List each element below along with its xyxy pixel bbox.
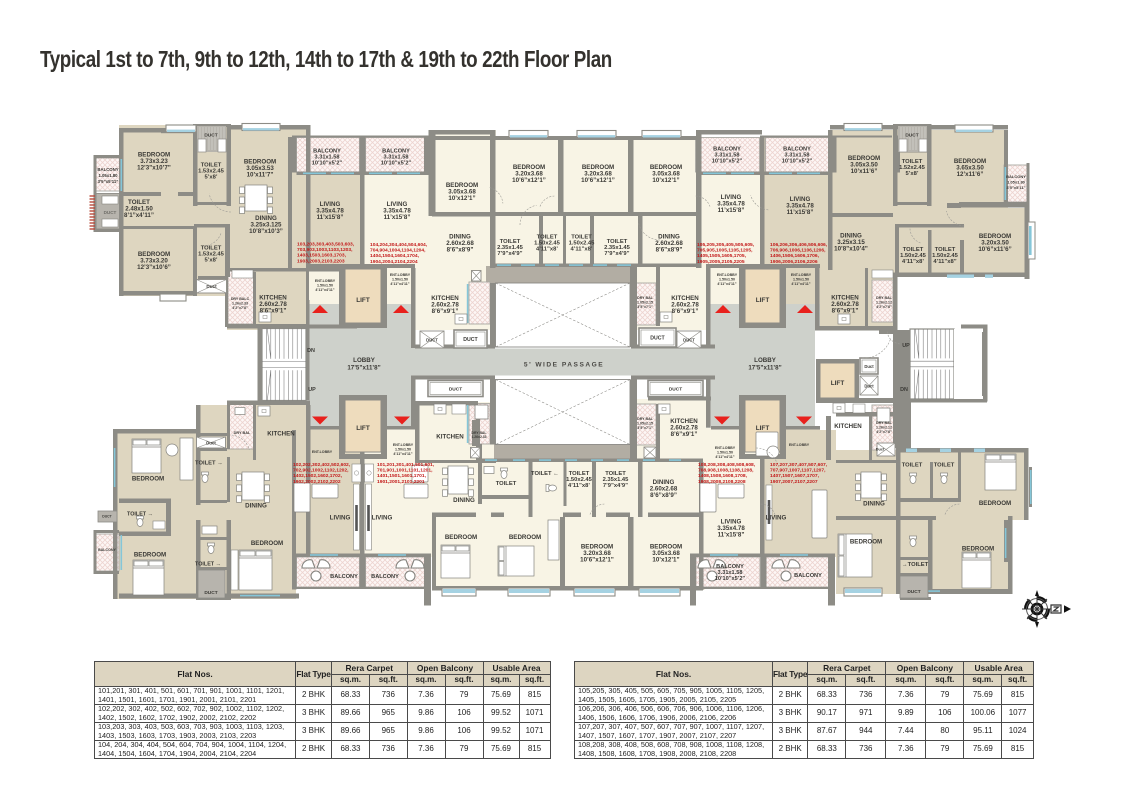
svg-text:BALCONY1.05x1.803’5”x5’11”: BALCONY1.05x1.803’5”x5’11” (1006, 174, 1026, 190)
svg-text:TOILET1.50x2.454’11”x8’: TOILET1.50x2.454’11”x8’ (534, 235, 561, 253)
svg-text:DRY BALC1.26x2.334’2”x7’8”: DRY BALC1.26x2.334’2”x7’8” (231, 297, 250, 310)
svg-text:UP: UP (308, 387, 316, 393)
svg-text:KITCHEN2.60x2.788’6”x9’1”: KITCHEN2.60x2.788’6”x9’1” (431, 295, 459, 315)
svg-text:BEDROOM3.20x3.6810’6”x12’1”: BEDROOM3.20x3.6810’6”x12’1” (580, 544, 614, 564)
svg-text:KITCHEN: KITCHEN (834, 423, 862, 430)
svg-text:DINING: DINING (453, 497, 475, 504)
svg-text:TOILET: TOILET (934, 463, 955, 469)
svg-text:LIVING3.35x4.7811’x15’8”: LIVING3.35x4.7811’x15’8” (717, 194, 745, 214)
svg-text:BALCONY: BALCONY (330, 574, 358, 580)
svg-text:BALCONY: BALCONY (371, 574, 399, 580)
svg-text:DUCT: DUCT (204, 133, 217, 139)
svg-text:TOILET1.50x2.454’11”x8’: TOILET1.50x2.454’11”x8’ (566, 471, 593, 489)
svg-text:DUCT: DUCT (669, 386, 682, 392)
svg-text:→TOILET: →TOILET (902, 562, 929, 568)
svg-text:TOILET2.35x1.457’9”x4’9”: TOILET2.35x1.457’9”x4’9” (603, 471, 630, 489)
svg-text:LIVING: LIVING (372, 515, 393, 522)
svg-text:DUCT: DUCT (463, 337, 478, 343)
svg-text:TOILET →: TOILET → (195, 562, 221, 568)
svg-text:DRY BAL: DRY BAL (234, 431, 251, 435)
svg-text:Duct: Duct (876, 448, 885, 452)
svg-text:DN: DN (900, 387, 908, 393)
svg-text:TOILET ←: TOILET ← (531, 471, 559, 477)
svg-text:DUCT: DUCT (426, 337, 438, 342)
svg-text:LIVING3.35x4.7811’x15’8”: LIVING3.35x4.7811’x15’8” (316, 201, 344, 221)
svg-text:DINING2.60x2.688’6”x8’9”: DINING2.60x2.688’6”x8’9” (446, 234, 474, 254)
svg-text:KITCHEN2.60x2.788’6”x9’1”: KITCHEN2.60x2.788’6”x9’1” (671, 295, 699, 315)
svg-text:ENT.LOBBY: ENT.LOBBY (789, 443, 810, 447)
svg-text:DRY BAL1.05x2.153’5”x7’1”: DRY BAL1.05x2.153’5”x7’1” (637, 417, 654, 430)
svg-text:LIFT: LIFT (356, 425, 370, 432)
svg-text:BEDROOM: BEDROOM (850, 539, 882, 546)
svg-text:ENT.LOBBY1.50x1.504’11”x4’11”: ENT.LOBBY1.50x1.504’11”x4’11” (717, 273, 738, 286)
svg-text:BEDROOM3.05x3.6810’x12’1”: BEDROOM3.05x3.6810’x12’1” (446, 182, 478, 202)
svg-text:KITCHEN2.60x2.788’6”x9’1”: KITCHEN2.60x2.788’6”x9’1” (831, 295, 859, 315)
svg-text:LIFT: LIFT (756, 297, 770, 304)
svg-text:DINING: DINING (863, 501, 885, 508)
svg-text:DRY BAL1.26x2.33: DRY BAL1.26x2.33 (471, 431, 486, 439)
svg-text:BALCONY3.31x1.5810’10”x5’2”: BALCONY3.31x1.5810’10”x5’2” (381, 149, 412, 167)
svg-text:BEDROOM: BEDROOM (445, 534, 477, 541)
svg-text:BALCONY3.31x1.5810’10”x5’2”: BALCONY3.31x1.5810’10”x5’2” (715, 564, 746, 582)
svg-text:LIVING: LIVING (330, 515, 351, 522)
svg-text:DUCT: DUCT (449, 386, 462, 392)
svg-text:ENT.LOBBY1.50x1.504’11”x4’11”: ENT.LOBBY1.50x1.504’11”x4’11” (393, 443, 414, 456)
svg-text:Duct: Duct (206, 284, 217, 289)
svg-text:BEDROOM: BEDROOM (509, 534, 541, 541)
svg-text:TOILET →: TOILET → (127, 512, 153, 518)
svg-text:KITCHEN: KITCHEN (436, 434, 464, 441)
svg-text:TOILET1.50x2.454’11”x8”: TOILET1.50x2.454’11”x8” (932, 247, 959, 265)
svg-text:LIVING3.35x4.7811’x15’8”: LIVING3.35x4.7811’x15’8” (383, 201, 411, 221)
svg-text:BALCONY1.05x1.803’5”x5’11”: BALCONY1.05x1.803’5”x5’11” (97, 167, 118, 184)
svg-text:BEDROOM: BEDROOM (962, 546, 994, 553)
svg-text:DINING: DINING (245, 503, 267, 510)
svg-text:BEDROOM: BEDROOM (251, 540, 283, 547)
svg-text:UP: UP (902, 343, 910, 349)
svg-text:BEDROOM: BEDROOM (132, 476, 164, 483)
svg-text:Duct: Duct (864, 383, 874, 388)
svg-text:BEDROOM3.20x3.6810’6”x12’1”: BEDROOM3.20x3.6810’6”x12’1” (512, 164, 546, 184)
svg-text:Duct: Duct (206, 440, 216, 445)
svg-text:BEDROOM3.73x3.2012’3”x10’6”: BEDROOM3.73x3.2012’3”x10’6” (137, 251, 171, 271)
svg-text:DINING2.60x2.688’6”x8’9”: DINING2.60x2.688’6”x8’9” (655, 234, 683, 254)
svg-text:TOILET2.35x1.457’9”x4’9”: TOILET2.35x1.457’9”x4’9” (604, 239, 631, 257)
svg-text:TOILET →: TOILET → (195, 461, 223, 467)
svg-text:KITCHEN: KITCHEN (267, 431, 295, 438)
svg-text:BEDROOM3.20x3.6810’6”x12’1”: BEDROOM3.20x3.6810’6”x12’1” (581, 164, 615, 184)
svg-text:DUCT: DUCT (650, 335, 665, 341)
svg-text:TOILET2.35x1.457’9”x4’9”: TOILET2.35x1.457’9”x4’9” (497, 239, 524, 257)
svg-text:BEDROOM: BEDROOM (134, 552, 166, 559)
svg-text:BEDROOM3.05x3.5010’x11’6”: BEDROOM3.05x3.5010’x11’6” (848, 155, 880, 175)
svg-text:BEDROOM: BEDROOM (979, 500, 1011, 507)
svg-text:DUCT: DUCT (905, 133, 918, 139)
svg-text:BALCONY3.31x1.5810’10”x5’2”: BALCONY3.31x1.5810’10”x5’2” (782, 147, 813, 165)
svg-text:5’ WIDE PASSAGE: 5’ WIDE PASSAGE (524, 362, 604, 369)
svg-text:BEDROOM3.65x3.5012’x11’6”: BEDROOM3.65x3.5012’x11’6” (954, 158, 986, 178)
svg-text:TOILET: TOILET (902, 463, 923, 469)
svg-text:TOILET1.50x2.454’11”x8’: TOILET1.50x2.454’11”x8’ (900, 247, 927, 265)
svg-text:LIVING: LIVING (766, 515, 787, 522)
svg-text:Duct: Duct (864, 364, 874, 369)
svg-text:ENT.LOBBY1.50x1.504’11”x4’11”: ENT.LOBBY1.50x1.504’11”x4’11” (715, 446, 736, 459)
svg-text:DRY BAL1.05x2.153’5”x7’1”: DRY BAL1.05x2.153’5”x7’1” (637, 296, 654, 309)
svg-text:DUCT: DUCT (104, 210, 117, 215)
svg-text:DRY BAL1.26x2.124’2”x7’8”: DRY BAL1.26x2.124’2”x7’8” (876, 296, 893, 309)
svg-text:DUCT: DUCT (102, 515, 112, 519)
svg-text:KITCHEN2.60x2.788’6”x9’1”: KITCHEN2.60x2.788’6”x9’1” (670, 418, 698, 438)
svg-text:BEDROOM3.05x3.6810’x12’1”: BEDROOM3.05x3.6810’x12’1” (650, 164, 682, 184)
svg-text:ENT.LOBBY1.50x1.504’11”x4’11”: ENT.LOBBY1.50x1.504’11”x4’11” (315, 279, 336, 292)
svg-text:BALCONY3.31x1.5810’10”x5’2”: BALCONY3.31x1.5810’10”x5’2” (312, 149, 343, 167)
svg-text:LIFT: LIFT (831, 380, 845, 387)
svg-text:LIFT: LIFT (356, 297, 370, 304)
svg-text:BEDROOM3.20x3.5010’6”x11’6”: BEDROOM3.20x3.5010’6”x11’6” (978, 233, 1011, 253)
svg-text:DRY BAL1.26x2.124’2”x7’8”: DRY BAL1.26x2.124’2”x7’8” (876, 421, 893, 434)
svg-text:LIVING3.35x4.7811’x15’8”: LIVING3.35x4.7811’x15’8” (717, 519, 745, 539)
svg-text:DUCT: DUCT (683, 337, 695, 342)
svg-text:DUCT: DUCT (204, 590, 217, 596)
svg-text:DUCT: DUCT (907, 589, 920, 595)
svg-text:ENT.LOBBY: ENT.LOBBY (312, 450, 333, 454)
svg-text:BALCONY3.31x1.5810’10”x5’2”: BALCONY3.31x1.5810’10”x5’2” (712, 147, 743, 165)
svg-text:TOILET1.50x2.454’11”x8’: TOILET1.50x2.454’11”x8’ (569, 235, 596, 253)
svg-text:LIFT: LIFT (756, 425, 770, 432)
svg-text:BALCONY: BALCONY (98, 548, 116, 552)
svg-text:BEDROOM3.05x3.6810’x12’1”: BEDROOM3.05x3.6810’x12’1” (650, 544, 682, 564)
svg-text:LIVING3.35x4.7811’x15’8”: LIVING3.35x4.7811’x15’8” (786, 196, 814, 216)
svg-text:DN: DN (307, 348, 315, 354)
svg-text:BEDROOM3.73x3.2312’3”x10’7”: BEDROOM3.73x3.2312’3”x10’7” (137, 152, 171, 172)
svg-text:ENT.LOBBY1.50x1.504’11”x4’11”: ENT.LOBBY1.50x1.504’11”x4’11” (791, 273, 812, 286)
svg-text:TOILET2.48x1.508’1”x4’11”: TOILET2.48x1.508’1”x4’11” (124, 199, 154, 219)
svg-text:BEDROOM3.05x3.5310’x11’7”: BEDROOM3.05x3.5310’x11’7” (244, 159, 276, 179)
svg-text:KITCHEN2.60x2.788’6”x9’1”: KITCHEN2.60x2.788’6”x9’1” (259, 295, 287, 315)
svg-text:DINING2.60x2.688’6”x8’9”: DINING2.60x2.688’6”x8’9” (650, 479, 678, 499)
svg-text:BALCONY: BALCONY (794, 573, 822, 579)
svg-text:ENT.LOBBY1.50x1.504’11”x4’11”: ENT.LOBBY1.50x1.504’11”x4’11” (390, 273, 411, 286)
svg-text:TOILET: TOILET (496, 481, 517, 487)
